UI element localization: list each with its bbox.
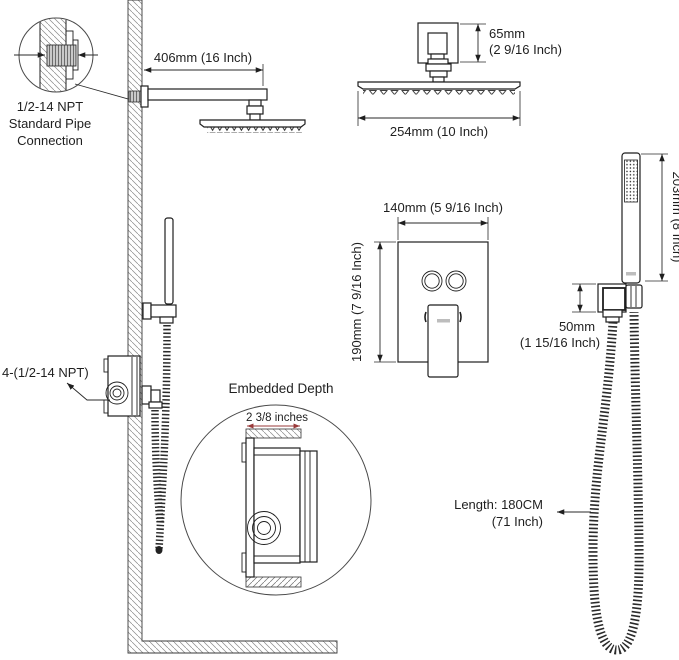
wand-holder-arm (151, 305, 176, 317)
arm-wall-thread (129, 91, 142, 102)
head-connector-nut (247, 106, 263, 114)
callout-leader-line (75, 84, 128, 99)
arm-escutcheon (141, 86, 148, 107)
hose-length-label-line2: (71 Inch) (492, 514, 543, 529)
embedded-depth-label: 2 3/8 inches (246, 412, 308, 424)
wand-bracket-block (603, 288, 625, 310)
pipe-connection-callout: 1/2-14 NPT Standard Pipe Connection (9, 16, 128, 148)
diagram-canvas: 1/2-14 NPT Standard Pipe Connection 406m… (0, 0, 679, 660)
wand-length-label: 203mm (8 Inch) (670, 171, 679, 262)
hand-shower-hose-left (159, 325, 167, 549)
shower-arm-assembly: 406mm (16 Inch) (129, 50, 305, 133)
valve-front-view: 140mm (5 9/16 Inch) 190mm (7 9/16 Inch) (349, 200, 503, 377)
head-connector-stem (250, 114, 260, 120)
wand-brand-mark (626, 272, 636, 276)
head-joint-nut (426, 64, 451, 71)
rainhead-front-plate (358, 82, 520, 89)
valve-outlet-nut (149, 402, 162, 408)
shower-system-dimension-diagram: 1/2-14 NPT Standard Pipe Connection 406m… (0, 0, 679, 660)
hose-coupler-bottom (606, 317, 619, 322)
valve-ports-label: 4-(1/2-14 NPT) (2, 365, 89, 380)
rainhead-front-view: 65mm (2 9/16 Inch) 254mm (10 Inch) (358, 23, 562, 139)
head-mount-inner (428, 33, 447, 54)
head-height-label-mm: 65mm (489, 26, 525, 41)
embedded-tab-bottom (242, 553, 246, 572)
embedded-wall-top (246, 429, 301, 438)
in-wall-assembly: 4-(1/2-14 NPT) (2, 218, 176, 554)
pipe-connection-label-line1: 1/2-14 NPT (17, 99, 84, 114)
valve-height-label: 190mm (7 9/16 Inch) (349, 242, 364, 362)
hand-shower-hose-loop (593, 312, 639, 650)
valve-body-side (108, 356, 140, 416)
pipe-connection-label-line2: Standard Pipe (9, 116, 91, 131)
head-height-label-inch: (2 9/16 Inch) (489, 42, 562, 57)
wand-spray-face (625, 160, 638, 202)
head-joint-2 (428, 59, 448, 64)
hose-length-label-line1: Length: 180CM (454, 497, 543, 512)
embedded-depth-title: Embedded Depth (228, 381, 333, 396)
holder-offset-label-mm: 50mm (559, 319, 595, 334)
head-joint-4 (433, 77, 444, 82)
pipe-thread (47, 45, 76, 66)
wand-side-view (165, 218, 173, 304)
ports-leader-line (67, 383, 110, 400)
valve-handle (428, 305, 458, 377)
arm-length-label: 406mm (16 Inch) (154, 50, 252, 65)
embedded-valve-body (254, 448, 300, 563)
valve-outlet-elbow (142, 386, 151, 404)
head-joint-3 (430, 71, 447, 77)
hose-end-tip (156, 546, 163, 554)
valve-outlet-spout (151, 390, 160, 402)
wand-holder-flange (143, 303, 151, 319)
embedded-wall-bottom (246, 577, 301, 587)
wand-bracket-nut (626, 285, 642, 308)
embedded-back-stack (300, 451, 317, 562)
pipe-connection-label-line3: Connection (17, 133, 83, 148)
embedded-depth-detail: Embedded Depth 2 3/8 inches (181, 381, 371, 595)
rainhead-front-nozzles (363, 89, 515, 95)
valve-width-label: 140mm (5 9/16 Inch) (383, 200, 503, 215)
handle-brand-mark (437, 319, 450, 323)
head-connector-top (249, 100, 261, 106)
holder-offset-label-inch: (1 15/16 Inch) (520, 335, 600, 350)
embedded-tab-top (242, 443, 246, 462)
shower-arm (148, 89, 267, 100)
head-joint-1 (431, 54, 444, 59)
head-width-label: 254mm (10 Inch) (390, 124, 488, 139)
embedded-faceplate (246, 438, 254, 577)
hose-coupler-top (603, 310, 622, 317)
rainhead-side-plate (200, 120, 305, 127)
valve-outlet-hose (155, 410, 160, 522)
rainhead-side-nozzles (207, 127, 302, 133)
wand-hose-nut (160, 317, 173, 323)
